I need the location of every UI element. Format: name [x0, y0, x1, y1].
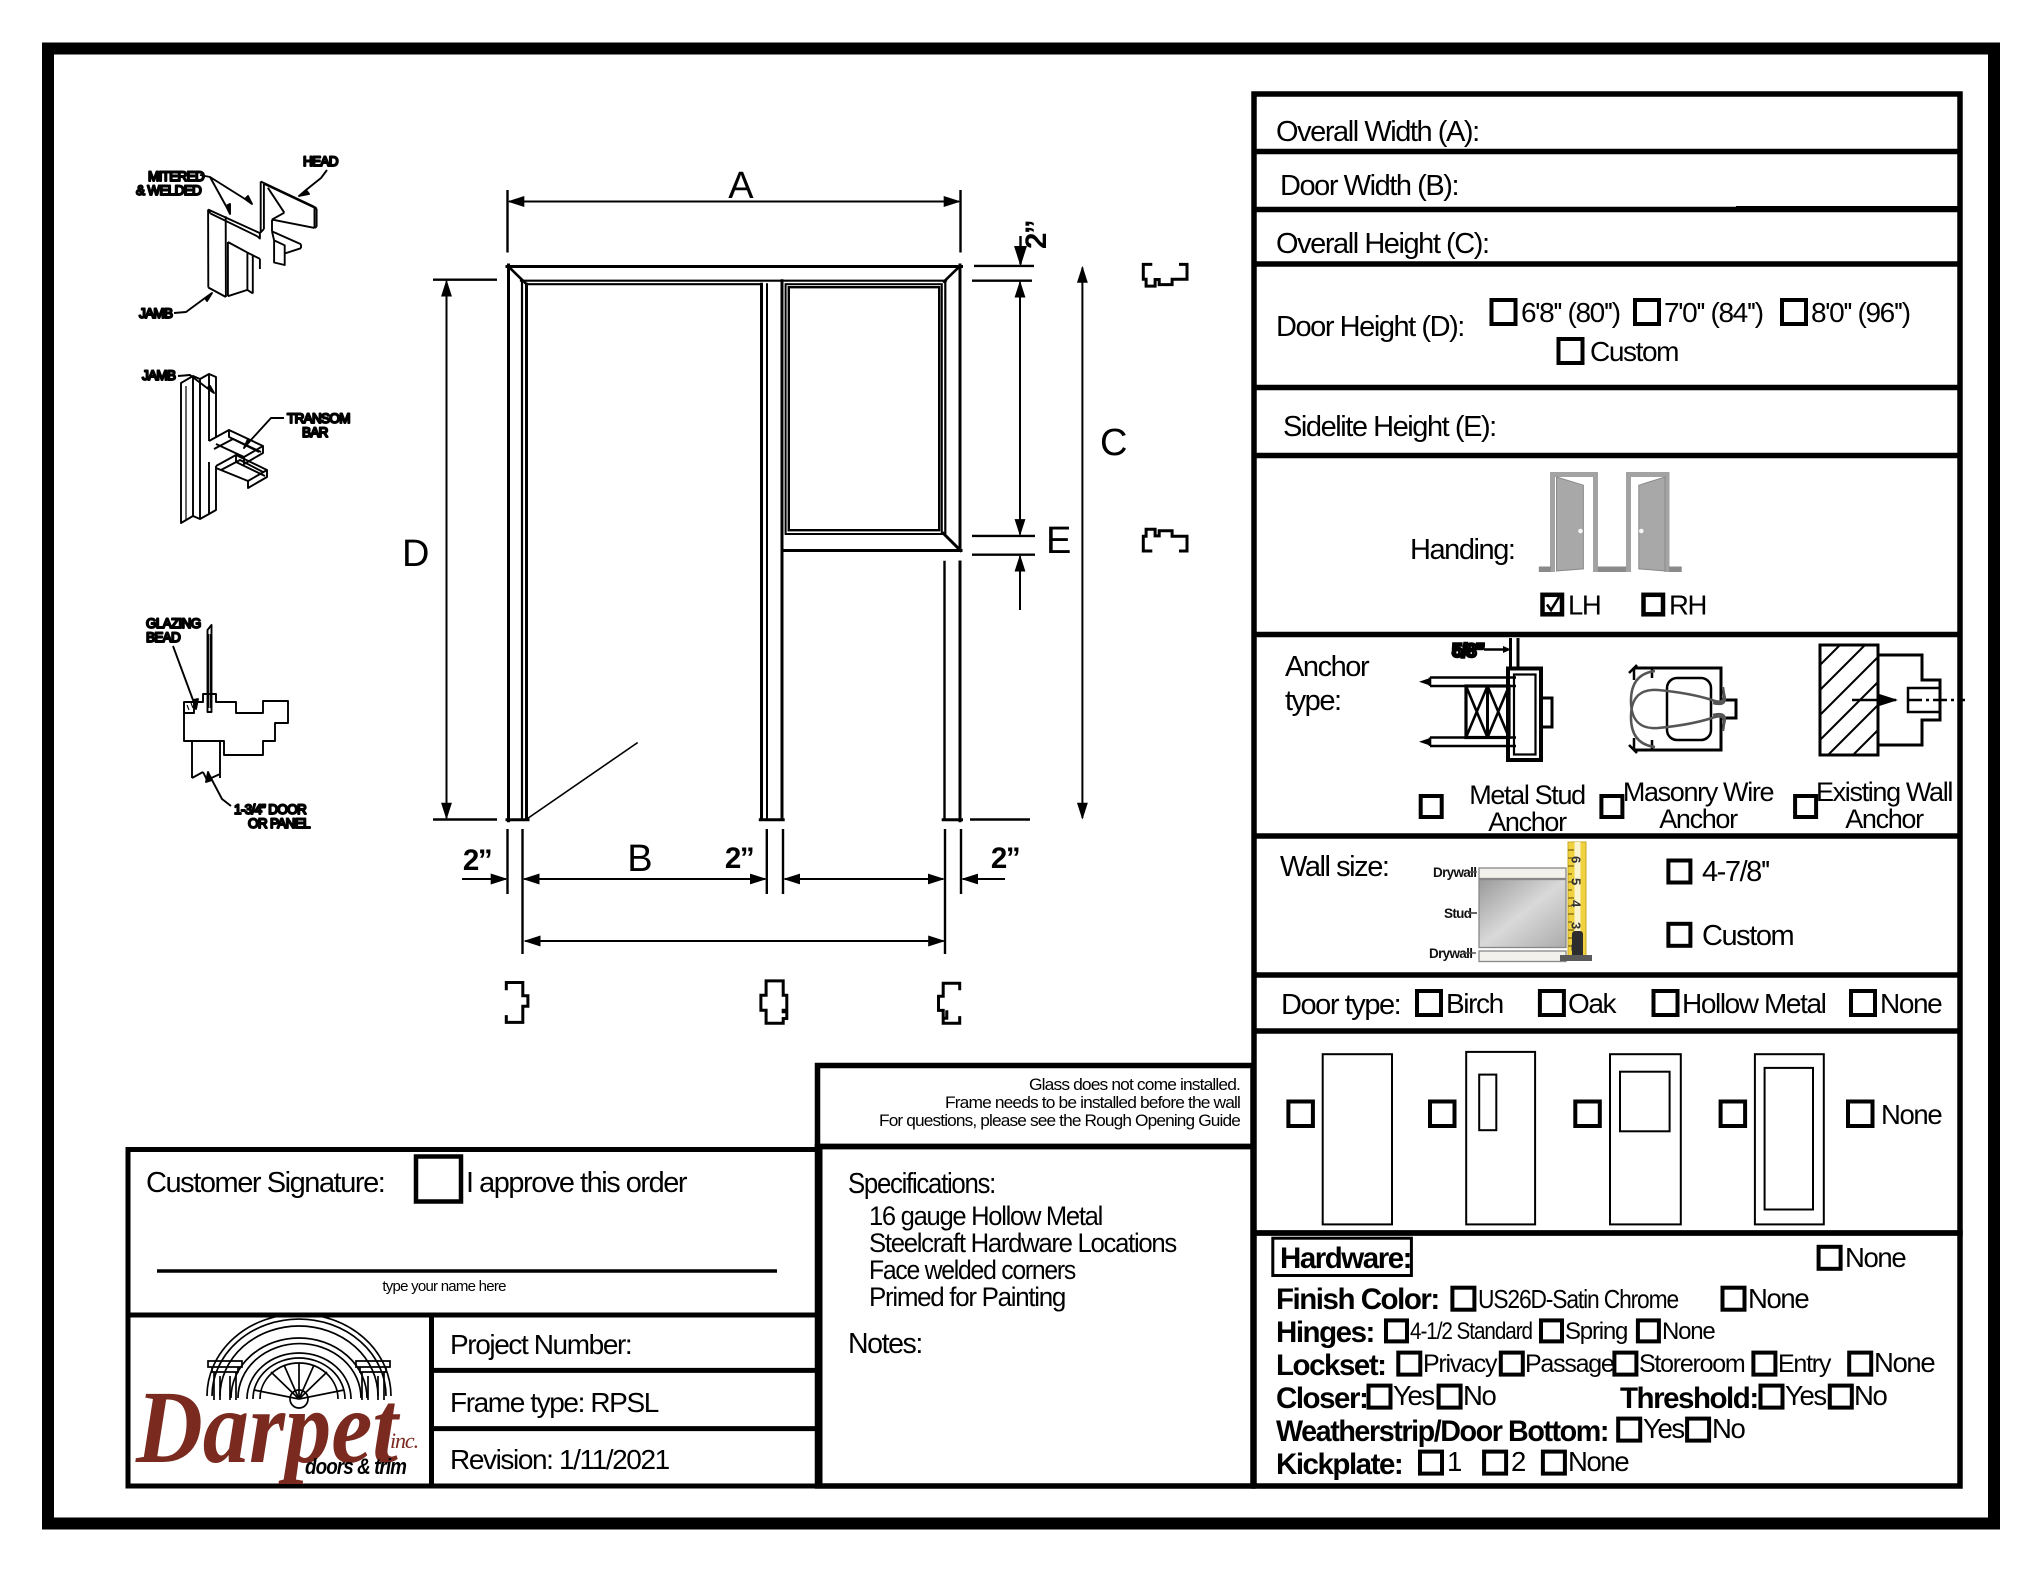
svg-text:RH: RH	[1669, 590, 1706, 621]
svg-text:inc.: inc.	[390, 1428, 418, 1453]
svg-text:4-7/8'': 4-7/8''	[1702, 856, 1770, 888]
svg-text:TRANSOM: TRANSOM	[287, 411, 350, 426]
svg-text:None: None	[1881, 1099, 1942, 1130]
svg-text:2”: 2”	[463, 844, 491, 877]
svg-text:JAMB: JAMB	[142, 368, 176, 383]
svg-text:Custom: Custom	[1590, 336, 1678, 367]
svg-text:Kickplate:: Kickplate:	[1276, 1448, 1402, 1481]
svg-text:I approve this order: I approve this order	[466, 1167, 688, 1199]
svg-text:C: C	[1100, 422, 1126, 464]
svg-text:Overall Width (A):: Overall Width (A):	[1276, 116, 1479, 148]
svg-text:LH: LH	[1568, 590, 1600, 621]
svg-text:For questions, please see the: For questions, please see the Rough Open…	[879, 1111, 1240, 1130]
svg-text:Custom: Custom	[1702, 920, 1794, 952]
svg-text:Finish Color:: Finish Color:	[1276, 1283, 1439, 1316]
svg-text:Birch: Birch	[1446, 988, 1503, 1019]
svg-text:US26D-Satin Chrome: US26D-Satin Chrome	[1478, 1284, 1679, 1314]
svg-text:Anchor: Anchor	[1488, 807, 1567, 837]
svg-text:16 gauge Hollow Metal: 16 gauge Hollow Metal	[869, 1201, 1102, 1231]
svg-text:Primed for Painting: Primed for Painting	[869, 1282, 1066, 1312]
svg-text:Handing:: Handing:	[1410, 534, 1515, 566]
svg-text:B: B	[627, 838, 651, 880]
svg-text:Frame type: RPSL: Frame type: RPSL	[450, 1387, 659, 1418]
svg-text:2”: 2”	[991, 842, 1019, 875]
svg-text:Door type:: Door type:	[1281, 989, 1400, 1021]
svg-text:Sidelite Height (E):: Sidelite Height (E):	[1283, 411, 1496, 443]
svg-text:1-3/4” DOOR: 1-3/4” DOOR	[234, 802, 307, 817]
svg-text:2”: 2”	[1020, 221, 1053, 249]
svg-text:No: No	[1463, 1380, 1496, 1411]
svg-text:HEAD: HEAD	[303, 154, 339, 169]
svg-text:A: A	[728, 165, 754, 207]
svg-text:Spring: Spring	[1565, 1318, 1627, 1345]
svg-text:E: E	[1046, 520, 1070, 562]
svg-text:5: 5	[1569, 878, 1584, 885]
svg-text:None: None	[1662, 1318, 1715, 1345]
svg-text:Hollow Metal: Hollow Metal	[1682, 988, 1826, 1019]
svg-text:Existing Wall: Existing Wall	[1816, 777, 1952, 807]
svg-text:None: None	[1748, 1283, 1809, 1314]
svg-text:Stud: Stud	[1444, 906, 1472, 921]
svg-text:Anchor: Anchor	[1285, 651, 1370, 683]
svg-text:5/8”: 5/8”	[1452, 641, 1485, 662]
svg-text:Customer Signature:: Customer Signature:	[146, 1167, 384, 1199]
svg-text:Privacy: Privacy	[1423, 1350, 1498, 1378]
svg-text:Door Height (D):: Door Height (D):	[1276, 311, 1464, 343]
svg-text:Project Number:: Project Number:	[450, 1329, 631, 1360]
svg-text:D: D	[402, 533, 428, 575]
svg-text:type:: type:	[1285, 685, 1341, 717]
svg-text:Drywall: Drywall	[1433, 865, 1476, 880]
svg-text:Wall size:: Wall size:	[1280, 851, 1389, 883]
svg-text:Threshold:: Threshold:	[1620, 1382, 1758, 1415]
svg-text:Entry: Entry	[1778, 1350, 1832, 1378]
svg-text:None: None	[1874, 1347, 1935, 1378]
svg-text:2: 2	[1511, 1446, 1525, 1477]
svg-text:Specifications:: Specifications:	[848, 1168, 995, 1200]
svg-text:6: 6	[1569, 856, 1584, 863]
svg-text:3: 3	[1569, 922, 1584, 929]
svg-text:Yes: Yes	[1785, 1380, 1826, 1411]
svg-text:Closer:: Closer:	[1276, 1382, 1367, 1415]
svg-text:Yes: Yes	[1643, 1413, 1684, 1444]
svg-text:2”: 2”	[725, 842, 753, 875]
svg-text:7'0'' (84''): 7'0'' (84'')	[1664, 297, 1763, 328]
svg-text:MITERED: MITERED	[148, 169, 205, 184]
svg-text:Passage: Passage	[1525, 1350, 1614, 1378]
svg-text:Lockset:: Lockset:	[1276, 1349, 1386, 1382]
svg-text:None: None	[1568, 1446, 1629, 1477]
svg-text:Revision: 1/11/2021: Revision: 1/11/2021	[450, 1444, 670, 1475]
svg-text:Metal Stud: Metal Stud	[1469, 780, 1585, 810]
svg-text:Oak: Oak	[1568, 988, 1618, 1019]
svg-text:Overall Height (C):: Overall Height (C):	[1276, 228, 1489, 260]
svg-text:Hardware:: Hardware:	[1280, 1242, 1411, 1275]
svg-text:type your name here: type your name here	[382, 1278, 506, 1295]
svg-text:Anchor: Anchor	[1845, 804, 1924, 834]
svg-text:1: 1	[1447, 1446, 1461, 1477]
svg-text:6'8'' (80''): 6'8'' (80'')	[1521, 297, 1620, 328]
svg-text:Masonry Wire: Masonry Wire	[1623, 777, 1774, 807]
svg-text:None: None	[1880, 988, 1942, 1019]
svg-text:Notes:: Notes:	[848, 1328, 922, 1360]
svg-text:Glass does not come installed.: Glass does not come installed.	[1029, 1075, 1240, 1094]
svg-text:Steelcraft Hardware Locations: Steelcraft Hardware Locations	[869, 1228, 1177, 1258]
svg-text:Door Width (B):: Door Width (B):	[1280, 170, 1458, 202]
svg-text:Weatherstrip/Door Bottom:: Weatherstrip/Door Bottom:	[1276, 1415, 1608, 1448]
svg-text:Hinges:: Hinges:	[1276, 1316, 1374, 1349]
svg-text:Face welded corners: Face welded corners	[869, 1255, 1076, 1285]
svg-text:doors & trim: doors & trim	[305, 1454, 406, 1479]
svg-text:Storeroom: Storeroom	[1639, 1350, 1745, 1378]
svg-text:Yes: Yes	[1393, 1380, 1434, 1411]
svg-text:Anchor: Anchor	[1659, 804, 1738, 834]
svg-text:BAR: BAR	[302, 425, 329, 440]
svg-text:No: No	[1854, 1380, 1887, 1411]
svg-text:Frame needs to be installed be: Frame needs to be installed before the w…	[945, 1093, 1240, 1112]
svg-text:No: No	[1712, 1413, 1745, 1444]
svg-text:& WELDED: & WELDED	[136, 183, 202, 198]
svg-text:None: None	[1845, 1242, 1906, 1273]
svg-text:OR PANEL: OR PANEL	[248, 816, 311, 831]
svg-text:GLAZING: GLAZING	[146, 616, 201, 631]
svg-text:4-1/2 Standard: 4-1/2 Standard	[1410, 1318, 1532, 1345]
svg-text:8'0'' (96''): 8'0'' (96'')	[1811, 297, 1910, 328]
svg-text:BEAD: BEAD	[146, 630, 181, 645]
svg-text:JAMB: JAMB	[139, 306, 173, 321]
